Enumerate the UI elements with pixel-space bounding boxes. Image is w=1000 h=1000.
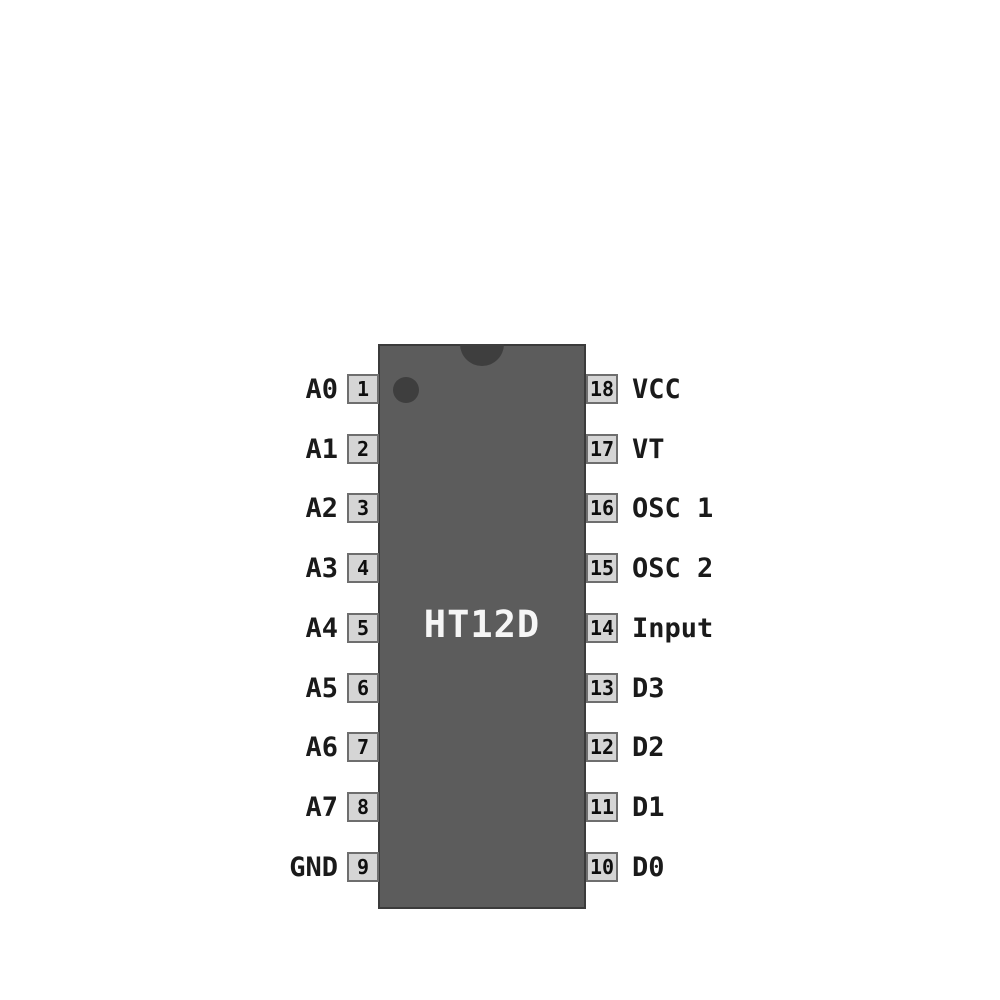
pin-row-left-1: A0 1 bbox=[0, 374, 379, 404]
pin-number: 12 bbox=[590, 737, 614, 757]
pin-number: 14 bbox=[590, 618, 614, 638]
pin-number-box: 17 bbox=[586, 434, 618, 464]
pin-number-box: 2 bbox=[347, 434, 379, 464]
pin-label: OSC 2 bbox=[632, 555, 713, 582]
pin-row-right-10: 10 D0 bbox=[586, 852, 665, 882]
pin-row-right-11: 11 D1 bbox=[586, 792, 665, 822]
pin-label: Input bbox=[632, 615, 713, 642]
pin-number-box: 15 bbox=[586, 553, 618, 583]
pin-row-left-7: A6 7 bbox=[0, 732, 379, 762]
chip-name: HT12D bbox=[380, 606, 584, 643]
pin-label: A3 bbox=[305, 555, 338, 582]
pin-number: 13 bbox=[590, 678, 614, 698]
pin-row-right-15: 15 OSC 2 bbox=[586, 553, 713, 583]
pin-number: 6 bbox=[357, 678, 369, 698]
pin-row-left-4: A3 4 bbox=[0, 553, 379, 583]
pin-number: 9 bbox=[357, 857, 369, 877]
pin-label: VT bbox=[632, 436, 665, 463]
pin-label: VCC bbox=[632, 376, 681, 403]
pinout-diagram: HT12D A0 1 A1 2 A2 3 A3 4 A4 5 A5 6 A6 7… bbox=[0, 0, 1000, 1000]
pin-number-box: 8 bbox=[347, 792, 379, 822]
pin-row-left-5: A4 5 bbox=[0, 613, 379, 643]
pin-row-right-16: 16 OSC 1 bbox=[586, 493, 713, 523]
pin-number: 4 bbox=[357, 558, 369, 578]
pin-number-box: 18 bbox=[586, 374, 618, 404]
pin-number-box: 6 bbox=[347, 673, 379, 703]
pin-label: A4 bbox=[305, 615, 338, 642]
pin-row-right-13: 13 D3 bbox=[586, 673, 665, 703]
pin1-indicator-dot-icon bbox=[393, 377, 419, 403]
pin-label: OSC 1 bbox=[632, 495, 713, 522]
pin-row-right-12: 12 D2 bbox=[586, 732, 665, 762]
pin-row-left-2: A1 2 bbox=[0, 434, 379, 464]
pin-row-left-6: A5 6 bbox=[0, 673, 379, 703]
pin-number: 17 bbox=[590, 439, 614, 459]
pin-number: 15 bbox=[590, 558, 614, 578]
pin-number: 1 bbox=[357, 379, 369, 399]
pin-row-right-17: 17 VT bbox=[586, 434, 665, 464]
pin-number-box: 1 bbox=[347, 374, 379, 404]
pin-number: 2 bbox=[357, 439, 369, 459]
pin-number-box: 10 bbox=[586, 852, 618, 882]
pin-number: 7 bbox=[357, 737, 369, 757]
pin-number-box: 4 bbox=[347, 553, 379, 583]
pin-number-box: 14 bbox=[586, 613, 618, 643]
pin-row-left-3: A2 3 bbox=[0, 493, 379, 523]
pin-row-left-9: GND 9 bbox=[0, 852, 379, 882]
pin-label: D1 bbox=[632, 794, 665, 821]
pin-label: A0 bbox=[305, 376, 338, 403]
pin-number-box: 9 bbox=[347, 852, 379, 882]
ic-body: HT12D bbox=[378, 344, 586, 909]
pin-label: D3 bbox=[632, 675, 665, 702]
pin-number: 16 bbox=[590, 498, 614, 518]
orientation-notch-icon bbox=[460, 344, 504, 366]
pin-number: 5 bbox=[357, 618, 369, 638]
pin-number: 3 bbox=[357, 498, 369, 518]
pin-number-box: 13 bbox=[586, 673, 618, 703]
pin-number: 10 bbox=[590, 857, 614, 877]
pin-label: GND bbox=[289, 854, 338, 881]
pin-label: A6 bbox=[305, 734, 338, 761]
pin-number-box: 3 bbox=[347, 493, 379, 523]
pin-number: 18 bbox=[590, 379, 614, 399]
pin-number-box: 16 bbox=[586, 493, 618, 523]
pin-row-right-18: 18 VCC bbox=[586, 374, 681, 404]
pin-row-right-14: 14 Input bbox=[586, 613, 713, 643]
pin-label: D2 bbox=[632, 734, 665, 761]
pin-row-left-8: A7 8 bbox=[0, 792, 379, 822]
pin-number-box: 11 bbox=[586, 792, 618, 822]
pin-label: D0 bbox=[632, 854, 665, 881]
pin-label: A5 bbox=[305, 675, 338, 702]
pin-number-box: 12 bbox=[586, 732, 618, 762]
pin-label: A7 bbox=[305, 794, 338, 821]
pin-number-box: 7 bbox=[347, 732, 379, 762]
pin-number: 8 bbox=[357, 797, 369, 817]
pin-number: 11 bbox=[590, 797, 614, 817]
pin-number-box: 5 bbox=[347, 613, 379, 643]
pin-label: A1 bbox=[305, 436, 338, 463]
pin-label: A2 bbox=[305, 495, 338, 522]
